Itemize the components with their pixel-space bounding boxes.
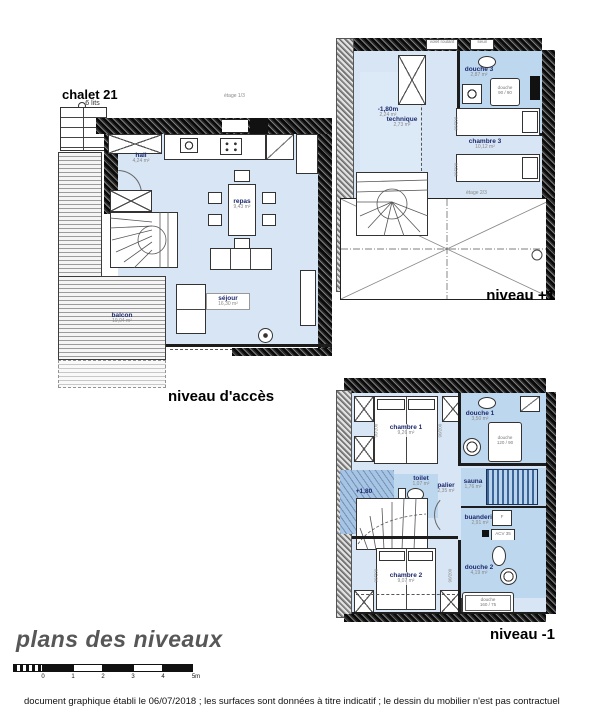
wall-right <box>546 392 556 614</box>
bed-size-label: 90/200 <box>454 111 459 131</box>
kitchen-sink-icon <box>180 138 198 153</box>
duct-block <box>530 76 540 100</box>
wall-douche2-left <box>458 540 461 614</box>
armchair <box>176 284 206 334</box>
staircase-acces <box>110 212 178 268</box>
dining-chair <box>234 170 250 182</box>
dining-chair <box>208 192 222 204</box>
bed-size-label: 90/200 <box>374 563 379 583</box>
scale-tick: 0 <box>41 674 44 680</box>
roof-line-dashed <box>356 594 460 595</box>
room-area: 4,19 m² <box>462 571 496 577</box>
plan-niveau-acces: chalet 21 6 lits étage 1/3 balcon 19,04 … <box>0 0 335 410</box>
dining-chair <box>262 214 276 226</box>
staircase-plus1 <box>356 172 428 236</box>
wall-top <box>344 378 546 393</box>
wardrobe <box>354 436 374 462</box>
room-label-douche2: douche 2 4,19 m² <box>462 564 496 577</box>
chimney-block <box>250 118 268 134</box>
kitchen-corner-unit <box>296 134 318 174</box>
wc-icon <box>492 546 506 566</box>
scale-bar: 0 1 2 3 4 5m <box>13 664 199 684</box>
freezer-box: F <box>492 510 512 526</box>
chalet-beds-label: 6 lits <box>70 100 115 107</box>
rolling-shutter-label: volet roulant <box>430 39 455 44</box>
room-label-palier: palier 2,35 m² <box>430 482 462 495</box>
floor-plan-sheet: chalet 21 6 lits étage 1/3 balcon 19,04 … <box>0 0 600 718</box>
sheet-title: plans des niveaux <box>16 626 276 653</box>
staircase-minus1 <box>356 498 428 550</box>
room-area: 2,73 m² <box>378 123 426 129</box>
shower-size: 90 / 90 <box>491 91 519 96</box>
room-label-chambre3: chambre 3 10,12 m² <box>462 138 508 151</box>
kitchen-fridge <box>266 134 294 160</box>
dining-chair <box>262 192 276 204</box>
wall-chambre2-top <box>352 536 458 539</box>
scale-tick: 4 <box>161 674 164 680</box>
wall-bottom-band <box>344 614 546 622</box>
shower-160x75: douche 160 / 75 <box>462 592 514 614</box>
scale-segment <box>163 664 193 672</box>
room-label-sauna: sauna 1,76 m² <box>460 478 486 491</box>
wall-buanderie-top <box>461 506 546 508</box>
room-area: 9,26 m² <box>382 431 430 437</box>
scale-fine-segment <box>13 664 43 672</box>
scale-segment <box>103 664 133 672</box>
sauna-benches <box>486 469 538 505</box>
threshold-box: seuil <box>470 39 494 50</box>
room-name: +1,80 <box>346 488 382 495</box>
plan-title-minus1: niveau -1 <box>440 626 555 643</box>
freezer-label: F <box>501 514 504 519</box>
room-label-balcon: balcon 19,04 m² <box>96 312 148 325</box>
room-area: 1,76 m² <box>460 485 486 491</box>
bed-size-label: 90/200 <box>448 563 453 583</box>
room-area: 10,12 m² <box>462 145 508 151</box>
bed-size-label: 90/200 <box>374 418 379 438</box>
scale-tick: 2 <box>101 674 104 680</box>
shower-size: 120 / 90 <box>489 441 521 446</box>
scale-segment <box>43 664 73 672</box>
wardrobe <box>354 396 374 422</box>
washbasin-icon <box>463 438 481 456</box>
wall-douche1-left <box>458 393 461 465</box>
scale-segment <box>73 664 103 672</box>
room-area: 16,30 m² <box>207 302 249 308</box>
room-area: 9,07 m² <box>382 579 430 585</box>
washing-machine-icon <box>462 84 482 104</box>
duct-block <box>482 530 489 537</box>
water-heater-label: ACV 35 <box>495 531 511 536</box>
room-label-chambre1: chambre 1 9,26 m² <box>382 424 430 437</box>
washbasin-icon <box>500 568 517 585</box>
scale-segment <box>133 664 163 672</box>
room-label-technique: technique 2,73 m² <box>378 116 426 129</box>
closet-entry <box>108 134 162 154</box>
bed-pillow <box>522 111 538 133</box>
wall-bottom <box>166 344 332 347</box>
scale-tick: 1 <box>71 674 74 680</box>
bed-pillow <box>408 399 435 410</box>
plan-title-plus1: niveau +1 <box>440 287 555 304</box>
room-label-repas: repas 9,43 m² <box>228 198 256 211</box>
shower-size: 160 / 75 <box>463 603 513 608</box>
plan-niveau-minus1: 90/200 90/200 chambre 1 9,26 m² douche 1… <box>330 370 560 660</box>
shower-90x90: douche 90 / 90 <box>490 78 520 106</box>
etage-note-acces: étage 1/3 <box>224 93 284 99</box>
bed-size-label: 90/200 <box>454 157 459 177</box>
tv-bench <box>300 270 316 326</box>
wall-top <box>96 118 332 134</box>
plan-niveau-plus1: volet roulant seuil -1,80m 2,24 m² techn… <box>330 30 560 315</box>
bed-pillow <box>408 551 433 561</box>
room-label-hall: hall 4,24 m² <box>118 152 164 165</box>
closet-technique <box>398 55 426 105</box>
room-label-low: +1,80 <box>346 488 382 495</box>
wall-douche1-bottom <box>458 463 546 466</box>
room-area: 4,24 m² <box>118 159 164 165</box>
rolling-shutter-box: volet roulant <box>426 39 458 50</box>
room-label-sejour: séjour 16,30 m² <box>206 293 250 310</box>
room-label-chambre2: chambre 2 9,07 m² <box>382 572 430 585</box>
room-area: 19,04 m² <box>96 319 148 325</box>
closet-hall <box>110 190 152 212</box>
threshold-label: seuil <box>477 39 486 44</box>
wc-icon <box>478 397 496 409</box>
wood-stove-icon <box>258 328 273 343</box>
window-top <box>222 119 248 133</box>
shower-120x90: douche 120 / 90 <box>488 422 522 462</box>
bed-size-label: 90/200 <box>438 418 443 438</box>
scale-tick: 3 <box>131 674 134 680</box>
sofa <box>210 248 272 270</box>
dining-chair <box>208 214 222 226</box>
document-note: document graphique établi le 06/07/2018 … <box>24 696 584 707</box>
bed-pillow <box>379 551 405 561</box>
bed-pillow <box>377 399 405 410</box>
plan-title-acces: niveau d'accès <box>168 388 298 405</box>
window-box <box>520 396 540 412</box>
wall-bottom-band <box>232 348 332 356</box>
bed-pillow <box>522 157 538 179</box>
balcony-deck-extension <box>58 360 166 388</box>
kitchen-hob-icon <box>220 138 242 155</box>
wall-right <box>542 50 555 198</box>
scale-tick: 5m <box>192 674 200 680</box>
etage-note-plus1: étage 2/3 <box>466 190 526 196</box>
room-area: 9,43 m² <box>228 205 256 211</box>
roof-edge-band <box>546 198 555 300</box>
